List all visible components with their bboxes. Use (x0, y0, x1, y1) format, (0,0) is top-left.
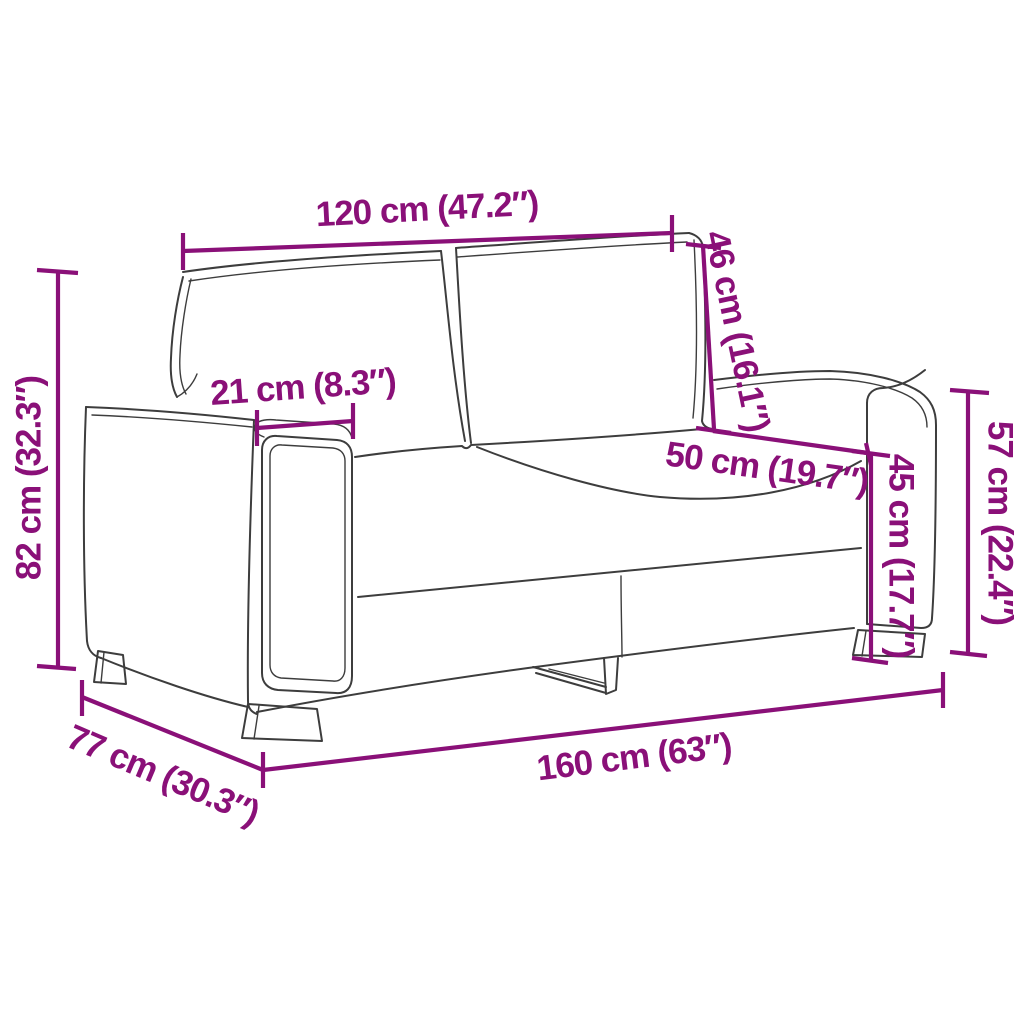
dimension-total-height: 82 cm (32.3″) (10, 270, 79, 669)
depth-label: 77 cm (30.3″) (61, 717, 264, 833)
seat-depth-label: 50 cm (19.7″) (663, 434, 871, 501)
dimension-seat-depth: 50 cm (19.7″) (663, 431, 871, 502)
back-width-label: 120 cm (47.2″) (315, 184, 539, 235)
dimension-total-width: 160 cm (63″) (263, 672, 943, 788)
total-height-label: 82 cm (32.3″) (10, 376, 49, 580)
dimension-backrest-height: 46 cm (16.1″) (686, 227, 777, 435)
armrest-width-label: 21 cm (8.3″) (209, 361, 397, 413)
seat-height-label: 45 cm (17.7″) (882, 454, 921, 658)
sled-leg (533, 658, 618, 694)
sofa-dimension-drawing: 120 cm (47.2″) 46 cm (16.1″) 21 cm (8.3″… (0, 0, 1024, 1024)
dimension-diagram: 120 cm (47.2″) 46 cm (16.1″) 21 cm (8.3″… (0, 0, 1024, 1024)
armrest-height-label: 57 cm (22.4″) (981, 421, 1020, 625)
dimension-armrest-height: 57 cm (22.4″) (950, 390, 1020, 656)
dimension-armrest-width: 21 cm (8.3″) (209, 361, 397, 446)
dimension-back-width: 120 cm (47.2″) (183, 184, 672, 270)
